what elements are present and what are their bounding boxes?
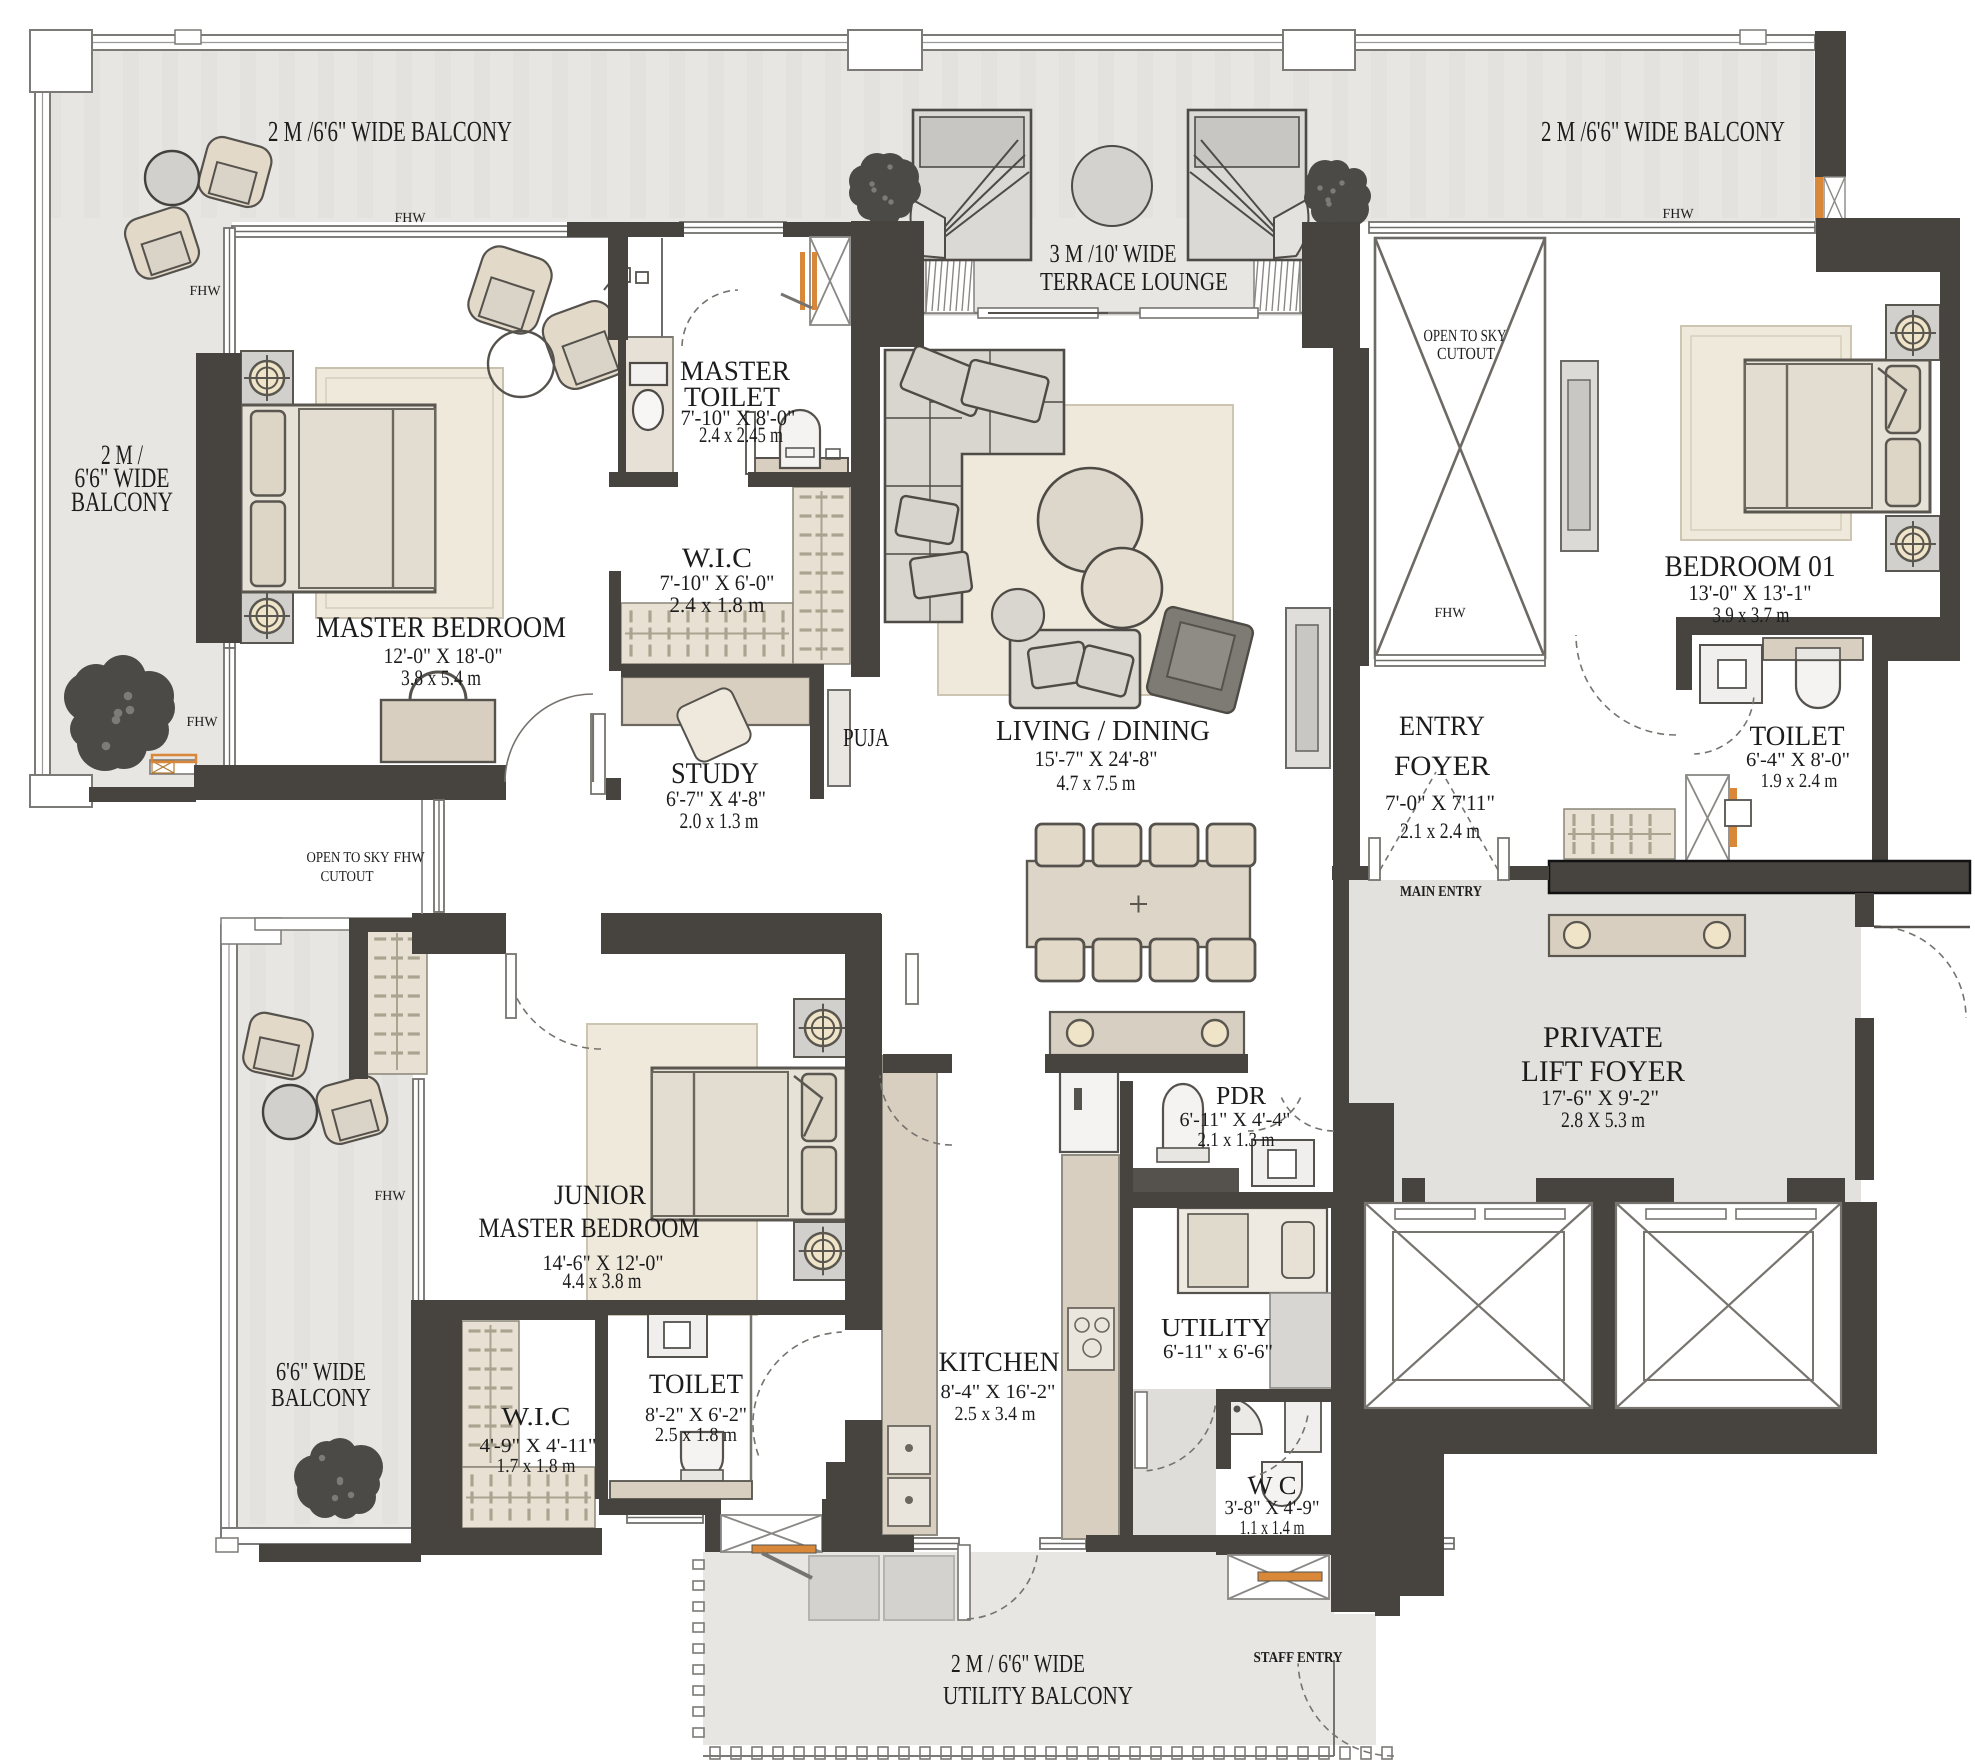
svg-text:FHW: FHW bbox=[1663, 207, 1695, 222]
svg-text:FHW: FHW bbox=[1435, 606, 1467, 621]
svg-text:15'-7" X 24'-8": 15'-7" X 24'-8" bbox=[1035, 746, 1158, 771]
svg-text:7'-0" X 7'11": 7'-0" X 7'11" bbox=[1385, 790, 1495, 815]
svg-text:BEDROOM 01: BEDROOM 01 bbox=[1665, 550, 1836, 583]
svg-text:2 M /6'6" WIDE BALCONY: 2 M /6'6" WIDE BALCONY bbox=[1541, 116, 1785, 148]
svg-text:1.9 x 2.4 m: 1.9 x 2.4 m bbox=[1761, 770, 1838, 792]
svg-text:BALCONY: BALCONY bbox=[271, 1383, 371, 1412]
svg-text:ENTRY: ENTRY bbox=[1399, 711, 1485, 742]
svg-text:6'6" WIDE: 6'6" WIDE bbox=[276, 1357, 366, 1386]
svg-text:OPEN TO SKY: OPEN TO SKY bbox=[1424, 326, 1507, 345]
svg-text:MASTER BEDROOM: MASTER BEDROOM bbox=[316, 611, 566, 644]
svg-text:FHW: FHW bbox=[375, 1189, 407, 1204]
svg-text:4.7 x 7.5 m: 4.7 x 7.5 m bbox=[1057, 770, 1136, 795]
svg-text:CUTOUT: CUTOUT bbox=[1437, 344, 1496, 363]
svg-text:2.5 x 3.4 m: 2.5 x 3.4 m bbox=[955, 1403, 1036, 1425]
svg-text:8'-4" X 16'-2": 8'-4" X 16'-2" bbox=[941, 1381, 1056, 1403]
svg-text:LIVING / DINING: LIVING / DINING bbox=[996, 715, 1210, 747]
svg-text:BALCONY: BALCONY bbox=[71, 487, 173, 518]
svg-text:3'-8" X 4'-9": 3'-8" X 4'-9" bbox=[1225, 1497, 1320, 1519]
svg-text:6'-4" X 8'-0": 6'-4" X 8'-0" bbox=[1746, 749, 1850, 771]
svg-text:W.I.C: W.I.C bbox=[502, 1402, 571, 1431]
svg-text:STAFF ENTRY: STAFF ENTRY bbox=[1254, 1650, 1343, 1666]
svg-text:3.8 x 5.4 m: 3.8 x 5.4 m bbox=[401, 665, 481, 690]
svg-text:PUJA: PUJA bbox=[843, 723, 889, 752]
svg-text:2 M /6'6" WIDE BALCONY: 2 M /6'6" WIDE BALCONY bbox=[268, 116, 512, 148]
svg-text:2.5 x 1.8 m: 2.5 x 1.8 m bbox=[655, 1424, 737, 1446]
svg-text:FOYER: FOYER bbox=[1394, 751, 1490, 782]
svg-text:2.4 x 1.8 m: 2.4 x 1.8 m bbox=[670, 592, 765, 617]
svg-text:3 M /10' WIDE: 3 M /10' WIDE bbox=[1050, 239, 1177, 268]
svg-text:FHW: FHW bbox=[187, 715, 219, 730]
svg-text:UTILITY BALCONY: UTILITY BALCONY bbox=[943, 1681, 1133, 1710]
svg-text:FHW: FHW bbox=[395, 211, 427, 226]
svg-text:2.1 x 1.3 m: 2.1 x 1.3 m bbox=[1198, 1129, 1275, 1151]
svg-text:2 M / 6'6" WIDE: 2 M / 6'6" WIDE bbox=[951, 1649, 1085, 1678]
svg-text:PRIVATE: PRIVATE bbox=[1543, 1021, 1663, 1054]
svg-text:W C: W C bbox=[1248, 1471, 1297, 1500]
svg-text:1.7 x 1.8 m: 1.7 x 1.8 m bbox=[497, 1455, 576, 1477]
svg-text:JUNIOR: JUNIOR bbox=[554, 1180, 646, 1211]
svg-text:2.4 x 2.45 m: 2.4 x 2.45 m bbox=[699, 422, 783, 447]
svg-text:UTILITY: UTILITY bbox=[1161, 1313, 1271, 1342]
svg-text:4'-9" X 4'-11": 4'-9" X 4'-11" bbox=[480, 1435, 597, 1457]
svg-text:FHW: FHW bbox=[394, 850, 426, 866]
svg-text:4.4 x 3.8 m: 4.4 x 3.8 m bbox=[563, 1268, 642, 1293]
svg-text:3.9 x 3.7 m: 3.9 x 3.7 m bbox=[1713, 602, 1790, 627]
svg-text:1.1 x 1.4 m: 1.1 x 1.4 m bbox=[1240, 1517, 1305, 1539]
svg-text:6'-11" X 4'-4": 6'-11" X 4'-4" bbox=[1180, 1109, 1291, 1131]
svg-text:PDR: PDR bbox=[1216, 1081, 1267, 1110]
svg-text:2.0 x 1.3 m: 2.0 x 1.3 m bbox=[680, 808, 759, 833]
svg-text:TERRACE LOUNGE: TERRACE LOUNGE bbox=[1040, 267, 1228, 296]
svg-text:KITCHEN: KITCHEN bbox=[939, 1347, 1060, 1378]
svg-text:8'-2" X 6'-2": 8'-2" X 6'-2" bbox=[645, 1404, 747, 1426]
svg-text:MASTER BEDROOM: MASTER BEDROOM bbox=[479, 1213, 700, 1244]
svg-text:6'-11" x 6'-6": 6'-11" x 6'-6" bbox=[1163, 1341, 1273, 1363]
svg-text:TOILET: TOILET bbox=[649, 1369, 743, 1400]
svg-text:FHW: FHW bbox=[190, 284, 222, 299]
svg-text:2.8 X 5.3 m: 2.8 X 5.3 m bbox=[1561, 1107, 1645, 1132]
svg-text:CUTOUT: CUTOUT bbox=[321, 869, 374, 885]
svg-text:OPEN TO SKY: OPEN TO SKY bbox=[307, 850, 390, 866]
svg-text:LIFT FOYER: LIFT FOYER bbox=[1521, 1055, 1685, 1088]
svg-text:TOILET: TOILET bbox=[1750, 721, 1845, 752]
svg-text:MAIN ENTRY: MAIN ENTRY bbox=[1400, 884, 1482, 900]
svg-text:2.1 x 2.4 m: 2.1 x 2.4 m bbox=[1400, 818, 1480, 843]
